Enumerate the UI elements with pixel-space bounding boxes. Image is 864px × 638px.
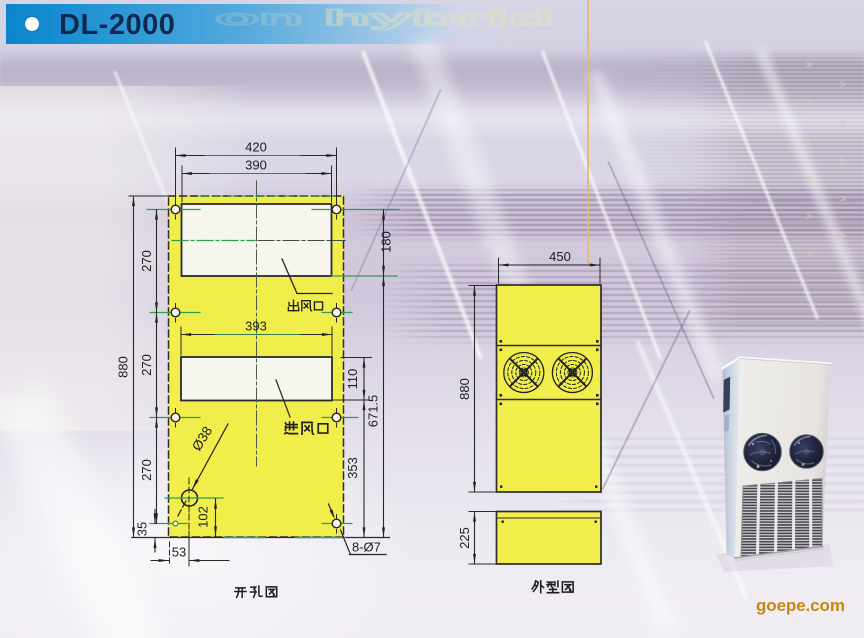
svg-text:880: 880 [457, 378, 472, 400]
svg-text:880: 880 [116, 356, 131, 378]
svg-text:8-Ø7: 8-Ø7 [352, 540, 381, 555]
svg-text:270: 270 [139, 250, 154, 272]
svg-text:102: 102 [196, 506, 211, 528]
svg-text:390: 390 [245, 158, 267, 173]
svg-text:671.5: 671.5 [366, 395, 381, 428]
svg-text:450: 450 [549, 249, 571, 264]
svg-text:270: 270 [139, 354, 154, 376]
svg-text:53: 53 [172, 545, 186, 560]
svg-text:35: 35 [135, 522, 150, 536]
svg-text:420: 420 [245, 140, 267, 155]
svg-text:110: 110 [345, 369, 360, 390]
svg-text:353: 353 [345, 457, 360, 479]
svg-text:270: 270 [139, 459, 154, 481]
svg-text:225: 225 [457, 527, 472, 549]
svg-text:393: 393 [245, 319, 267, 334]
svg-text:180: 180 [379, 231, 394, 253]
